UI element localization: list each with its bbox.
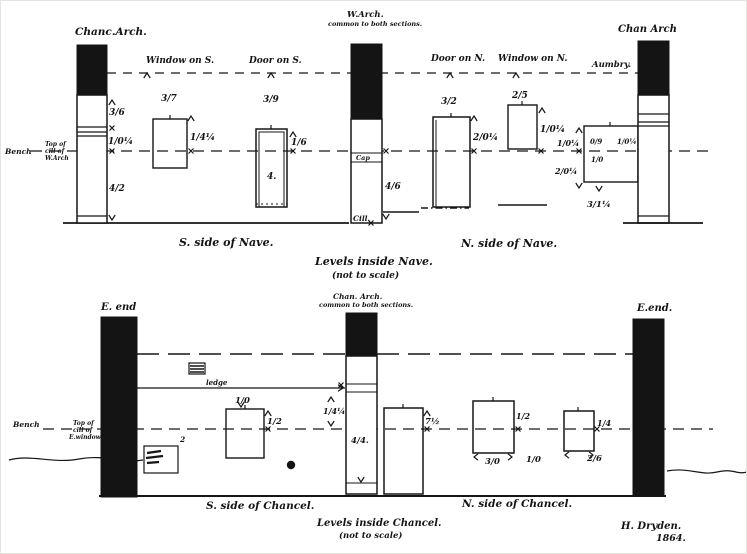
door-s-label: Door on S. [248, 56, 302, 66]
measure-chanc-arch-mid: 1/0¼ [108, 136, 133, 147]
measure-chancel-door-height: 7½ [425, 416, 440, 427]
chancel-window-n2-rect [564, 411, 594, 451]
chancel-arch-black-head [77, 45, 107, 95]
e-end-right-black [633, 319, 664, 495]
west-arch-label-2: common to both sections. [328, 20, 422, 28]
measure-aumbry-top: 1/0¼ [557, 138, 579, 148]
door-n-label: Door on N. [430, 54, 485, 64]
measure-door-n-height: 2/0¼ [472, 132, 498, 143]
diagram-canvas: Chanc.Arch. 3/6 1/0¼ 4/2 Bench Top of ci… [1, 1, 747, 554]
door-s-rect [256, 129, 287, 207]
measure-window-n-width: 2/5 [511, 91, 528, 101]
caption-not-to-scale-nave: (not to scale) [332, 270, 399, 281]
arrow-tick [565, 452, 569, 458]
caption-n-side-chancel: N. side of Chancel. [461, 498, 572, 510]
caption-n-side-nave: N. side of Nave. [460, 237, 557, 250]
e-end-right-label: E.end. [636, 303, 672, 314]
arrow-tick [290, 132, 296, 137]
arrow-tick [539, 108, 545, 113]
arrow-tick [109, 215, 115, 220]
chancel-arch-shaft [346, 356, 377, 494]
chancel-window-n1: 1/2 3/0 [473, 397, 530, 467]
x-tick [189, 149, 194, 154]
chancel-window-n2: 1/4 2/6 [564, 407, 611, 464]
chancel-e-end-right-column: E.end. [633, 303, 672, 495]
signature-name: H. Dryden. [620, 521, 681, 532]
nave-datum-note-3: W.Arch [45, 155, 69, 162]
arrow-tick [474, 454, 478, 460]
chancel-window-s: 1/0 1/2 [226, 396, 282, 458]
measure-arch-left: 1/4¼ [323, 406, 345, 416]
chancel-arch-label-2: common to both sections. [319, 301, 413, 309]
recess-rect [144, 446, 178, 473]
arrow-tick [144, 73, 150, 78]
x-tick [110, 126, 115, 131]
window-n-rect [508, 105, 537, 149]
measure-aumbry-inner-b: 1/0 [591, 155, 603, 164]
arrow-tick [268, 73, 274, 78]
nave-door-n: Door on N. 3/2 2/0¼ [430, 54, 498, 207]
cill-label: Cill. [353, 214, 371, 223]
measure-aumbry-inner-a: 0/9 [590, 137, 602, 146]
chan-arch-right-label: Chan Arch [618, 24, 677, 35]
ground-wavy-line-right [667, 470, 747, 473]
chancel-arch-label: Chanc.Arch. [75, 26, 147, 38]
window-s-label: Window on S. [146, 56, 214, 66]
x-tick [384, 149, 389, 154]
e-end-left-black [101, 317, 137, 497]
arrow-tick [471, 116, 477, 121]
chancel-arch-black-head [346, 313, 377, 356]
caption-s-side-nave: S. side of Nave. [179, 236, 274, 249]
nave-aumbry: Aumbry. 1/0¼ 2/0¼ 0/9 1/0 1/0¼ 3/1¼ [554, 60, 638, 210]
corbel-hatched-box [189, 363, 205, 374]
chancel-e-end-left-column: E. end [100, 302, 137, 497]
measure-window-n2-width: 2/6 [586, 454, 602, 464]
chancel-arch-shaft [77, 95, 107, 223]
measure-door-s-depth: 4. [267, 172, 276, 182]
window-s-rect [153, 119, 187, 168]
arrow-tick [596, 186, 602, 191]
arrow-tick [328, 397, 334, 402]
arrow-tick [508, 454, 512, 460]
arrow-tick [188, 116, 194, 121]
measure-window-n-height: 1/0¼ [540, 124, 565, 135]
west-arch-shaft [351, 119, 382, 223]
measure-between-windows: 1/0 [526, 455, 541, 465]
west-arch-label-1: W.Arch. [347, 10, 384, 20]
nave-section: Chanc.Arch. 3/6 1/0¼ 4/2 Bench Top of ci… [4, 10, 713, 281]
west-arch-black-head [351, 44, 382, 119]
measure-chanc-arch-low: 4/2 [109, 184, 125, 194]
measure-aumbry-below: 3/1¼ [587, 199, 611, 210]
chancel-datum-note-2: cill of [73, 427, 94, 434]
measure-door-s-height: 1/6 [291, 138, 308, 148]
corbel-hatching [190, 366, 204, 372]
arrow-tick [109, 100, 115, 105]
measure-window-s-height: 1/4¼ [190, 132, 215, 143]
nave-bench-label: Bench [4, 147, 32, 156]
caption-levels-nave: Levels inside Nave. [314, 255, 433, 268]
door-s-inner-jamb [259, 132, 284, 207]
chancel-datum-note-3: E.window [68, 434, 102, 441]
measure-window-s-width: 3/7 [161, 94, 178, 104]
nave-datum-note-2: cill of [45, 148, 66, 155]
measure-door-s-width: 3/9 [263, 95, 280, 105]
ledge-label: ledge [206, 378, 228, 387]
measure-chancel-window-s-height: 1/2 [267, 417, 282, 427]
chancel-arch-label-1: Chan. Arch. [333, 292, 383, 301]
cap-label: Cap [356, 154, 370, 162]
measure-w-arch-low: 4/6 [385, 182, 402, 192]
measure-recess-depth: 2 [179, 435, 185, 444]
scanned-survey-diagram: Chanc.Arch. 3/6 1/0¼ 4/2 Bench Top of ci… [0, 0, 747, 554]
caption-not-to-scale-chancel: (not to scale) [339, 530, 402, 541]
chancel-datum-note-1: Top of [73, 420, 95, 427]
arrow-tick [576, 128, 582, 133]
e-end-left-label: E. end [100, 302, 136, 313]
measure-door-n-width: 3/2 [441, 97, 457, 107]
recess-scribble [146, 451, 163, 463]
chancel-recess: 2 [144, 435, 185, 473]
arrow-tick [424, 411, 430, 416]
measure-chanc-arch-top: 3/6 [109, 108, 126, 118]
chancel-section: ledge E. end Bench Top of cill of E.wind… [9, 292, 747, 544]
nave-west-arch-column: Cap Cill. W.Arch. common to both section… [328, 10, 422, 223]
caption-levels-chancel: Levels inside Chancel. [316, 518, 442, 529]
arrow-tick [383, 214, 389, 219]
arrow-tick [447, 73, 453, 78]
nave-door-s: Door on S. 3/9 1/6 4. [248, 56, 308, 207]
nave-datum-note-1: Top of [45, 141, 67, 148]
measure-arch-inner: 4/4. [351, 436, 369, 446]
signature-year: 1864. [656, 533, 686, 544]
floor-level-dot [287, 461, 295, 469]
window-n-label: Window on N. [498, 54, 568, 64]
arrow-tick [576, 183, 582, 188]
chancel-window-n1-rect [473, 401, 514, 453]
chancel-window-s-rect [226, 409, 264, 458]
caption-s-side-chancel: S. side of Chancel. [206, 500, 314, 512]
chancel-bench-label: Bench [12, 420, 40, 429]
chancel-door-rect [384, 408, 423, 494]
nave-window-n: Window on N. 2/5 1/0¼ [498, 54, 568, 149]
aumbry-rect [584, 126, 638, 182]
chancel-arch-column: Chan. Arch. common to both sections. 4/4… [319, 292, 413, 494]
chan-arch-right-black-head [638, 41, 669, 95]
aumbry-label: Aumbry. [591, 60, 631, 70]
arrow-tick [265, 411, 271, 416]
door-n-rect [433, 117, 470, 207]
measure-window-n1-height: 1/2 [516, 411, 530, 421]
arrow-tick [513, 73, 519, 78]
chancel-door: 7½ [384, 404, 440, 494]
nave-chan-arch-right-column: Chan Arch [618, 24, 703, 223]
measure-aumbry-bottom: 2/0¼ [554, 166, 577, 176]
measure-aumbry-right: 1/0¼ [617, 137, 637, 146]
arrow-tick [328, 421, 334, 426]
measure-window-n1-width: 3/0 [485, 457, 500, 467]
